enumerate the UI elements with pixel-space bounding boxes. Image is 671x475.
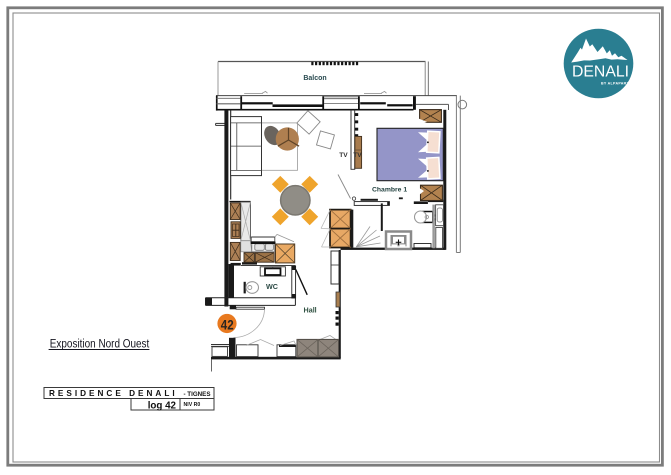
svg-text:Chambre 1: Chambre 1	[372, 187, 407, 194]
svg-text:RESIDENCE DENALI: RESIDENCE DENALI	[49, 389, 177, 398]
svg-text:TV: TV	[339, 152, 348, 159]
svg-text:42: 42	[221, 316, 234, 332]
svg-text:BY ALPAPART: BY ALPAPART	[601, 81, 630, 85]
svg-text:- TIGNES: - TIGNES	[184, 391, 212, 398]
svg-text:Hall: Hall	[304, 306, 317, 315]
svg-text:TV: TV	[353, 152, 362, 159]
svg-text:NIV R0: NIV R0	[184, 402, 201, 408]
svg-text:log 42: log 42	[148, 400, 177, 411]
svg-text:Exposition Nord Ouest: Exposition Nord Ouest	[50, 337, 150, 351]
svg-text:DENALI: DENALI	[572, 64, 629, 81]
svg-text:WC: WC	[266, 282, 278, 291]
svg-text:Balcon: Balcon	[303, 75, 326, 82]
